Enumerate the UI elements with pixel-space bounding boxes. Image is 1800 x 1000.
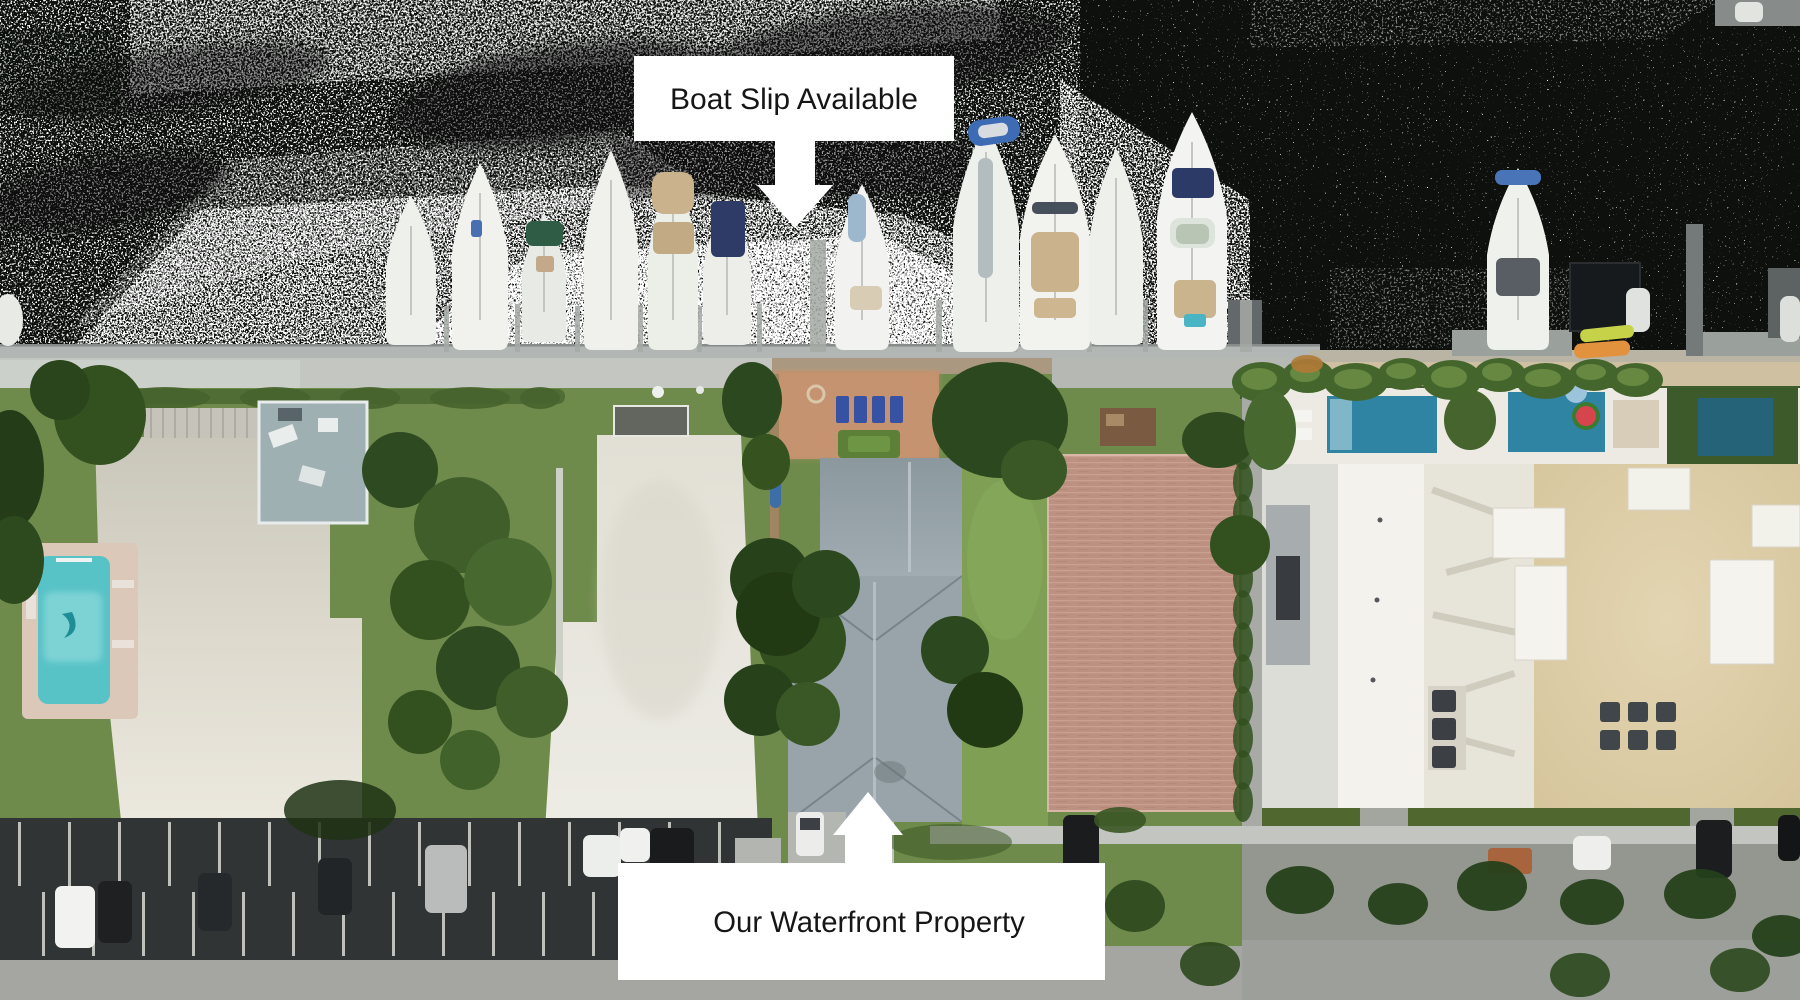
- svg-text:Boat Slip Available: Boat Slip Available: [670, 83, 918, 116]
- svg-text:Our Waterfront Property: Our Waterfront Property: [713, 906, 1025, 939]
